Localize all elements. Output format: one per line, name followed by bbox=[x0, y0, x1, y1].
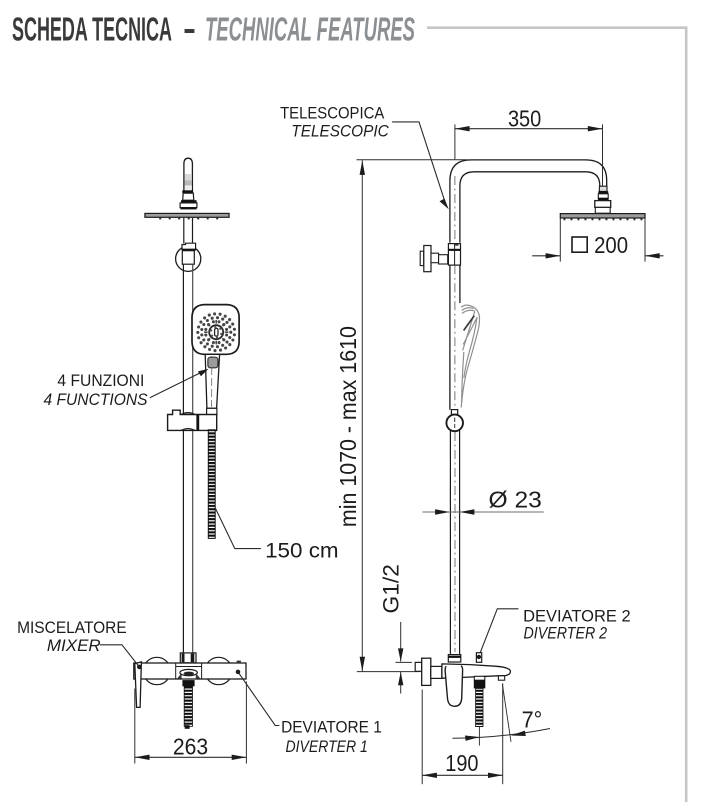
svg-text:Ø 23: Ø 23 bbox=[489, 486, 542, 512]
svg-text:MIXER: MIXER bbox=[47, 637, 101, 655]
svg-text:TELESCOPIC: TELESCOPIC bbox=[291, 123, 389, 141]
svg-text:DIVERTER 2: DIVERTER 2 bbox=[524, 624, 608, 642]
svg-text:DIVERTER 1: DIVERTER 1 bbox=[286, 738, 368, 756]
svg-text:150 cm: 150 cm bbox=[265, 539, 339, 562]
svg-text:SCHEDA TECNICA: SCHEDA TECNICA bbox=[12, 12, 172, 49]
svg-text:TELESCOPICA: TELESCOPICA bbox=[280, 105, 384, 123]
svg-text:MISCELATORE: MISCELATORE bbox=[17, 619, 127, 637]
svg-text:G1/2: G1/2 bbox=[379, 564, 404, 613]
svg-text:4 FUNZIONI: 4 FUNZIONI bbox=[57, 372, 144, 390]
svg-text:350: 350 bbox=[508, 105, 541, 131]
svg-text:200: 200 bbox=[594, 232, 628, 258]
svg-text:min 1070 - max 1610: min 1070 - max 1610 bbox=[335, 326, 361, 527]
svg-text:DEVIATORE 2: DEVIATORE 2 bbox=[523, 608, 631, 626]
svg-text:TECHNICAL FEATURES: TECHNICAL FEATURES bbox=[205, 12, 415, 49]
svg-text:263: 263 bbox=[173, 734, 208, 760]
svg-text:DEVIATORE 1: DEVIATORE 1 bbox=[281, 719, 382, 737]
svg-text:-: - bbox=[183, 11, 196, 48]
svg-text:7°: 7° bbox=[522, 707, 543, 733]
svg-text:190: 190 bbox=[445, 750, 478, 776]
svg-text:4 FUNCTIONS: 4 FUNCTIONS bbox=[44, 391, 148, 409]
